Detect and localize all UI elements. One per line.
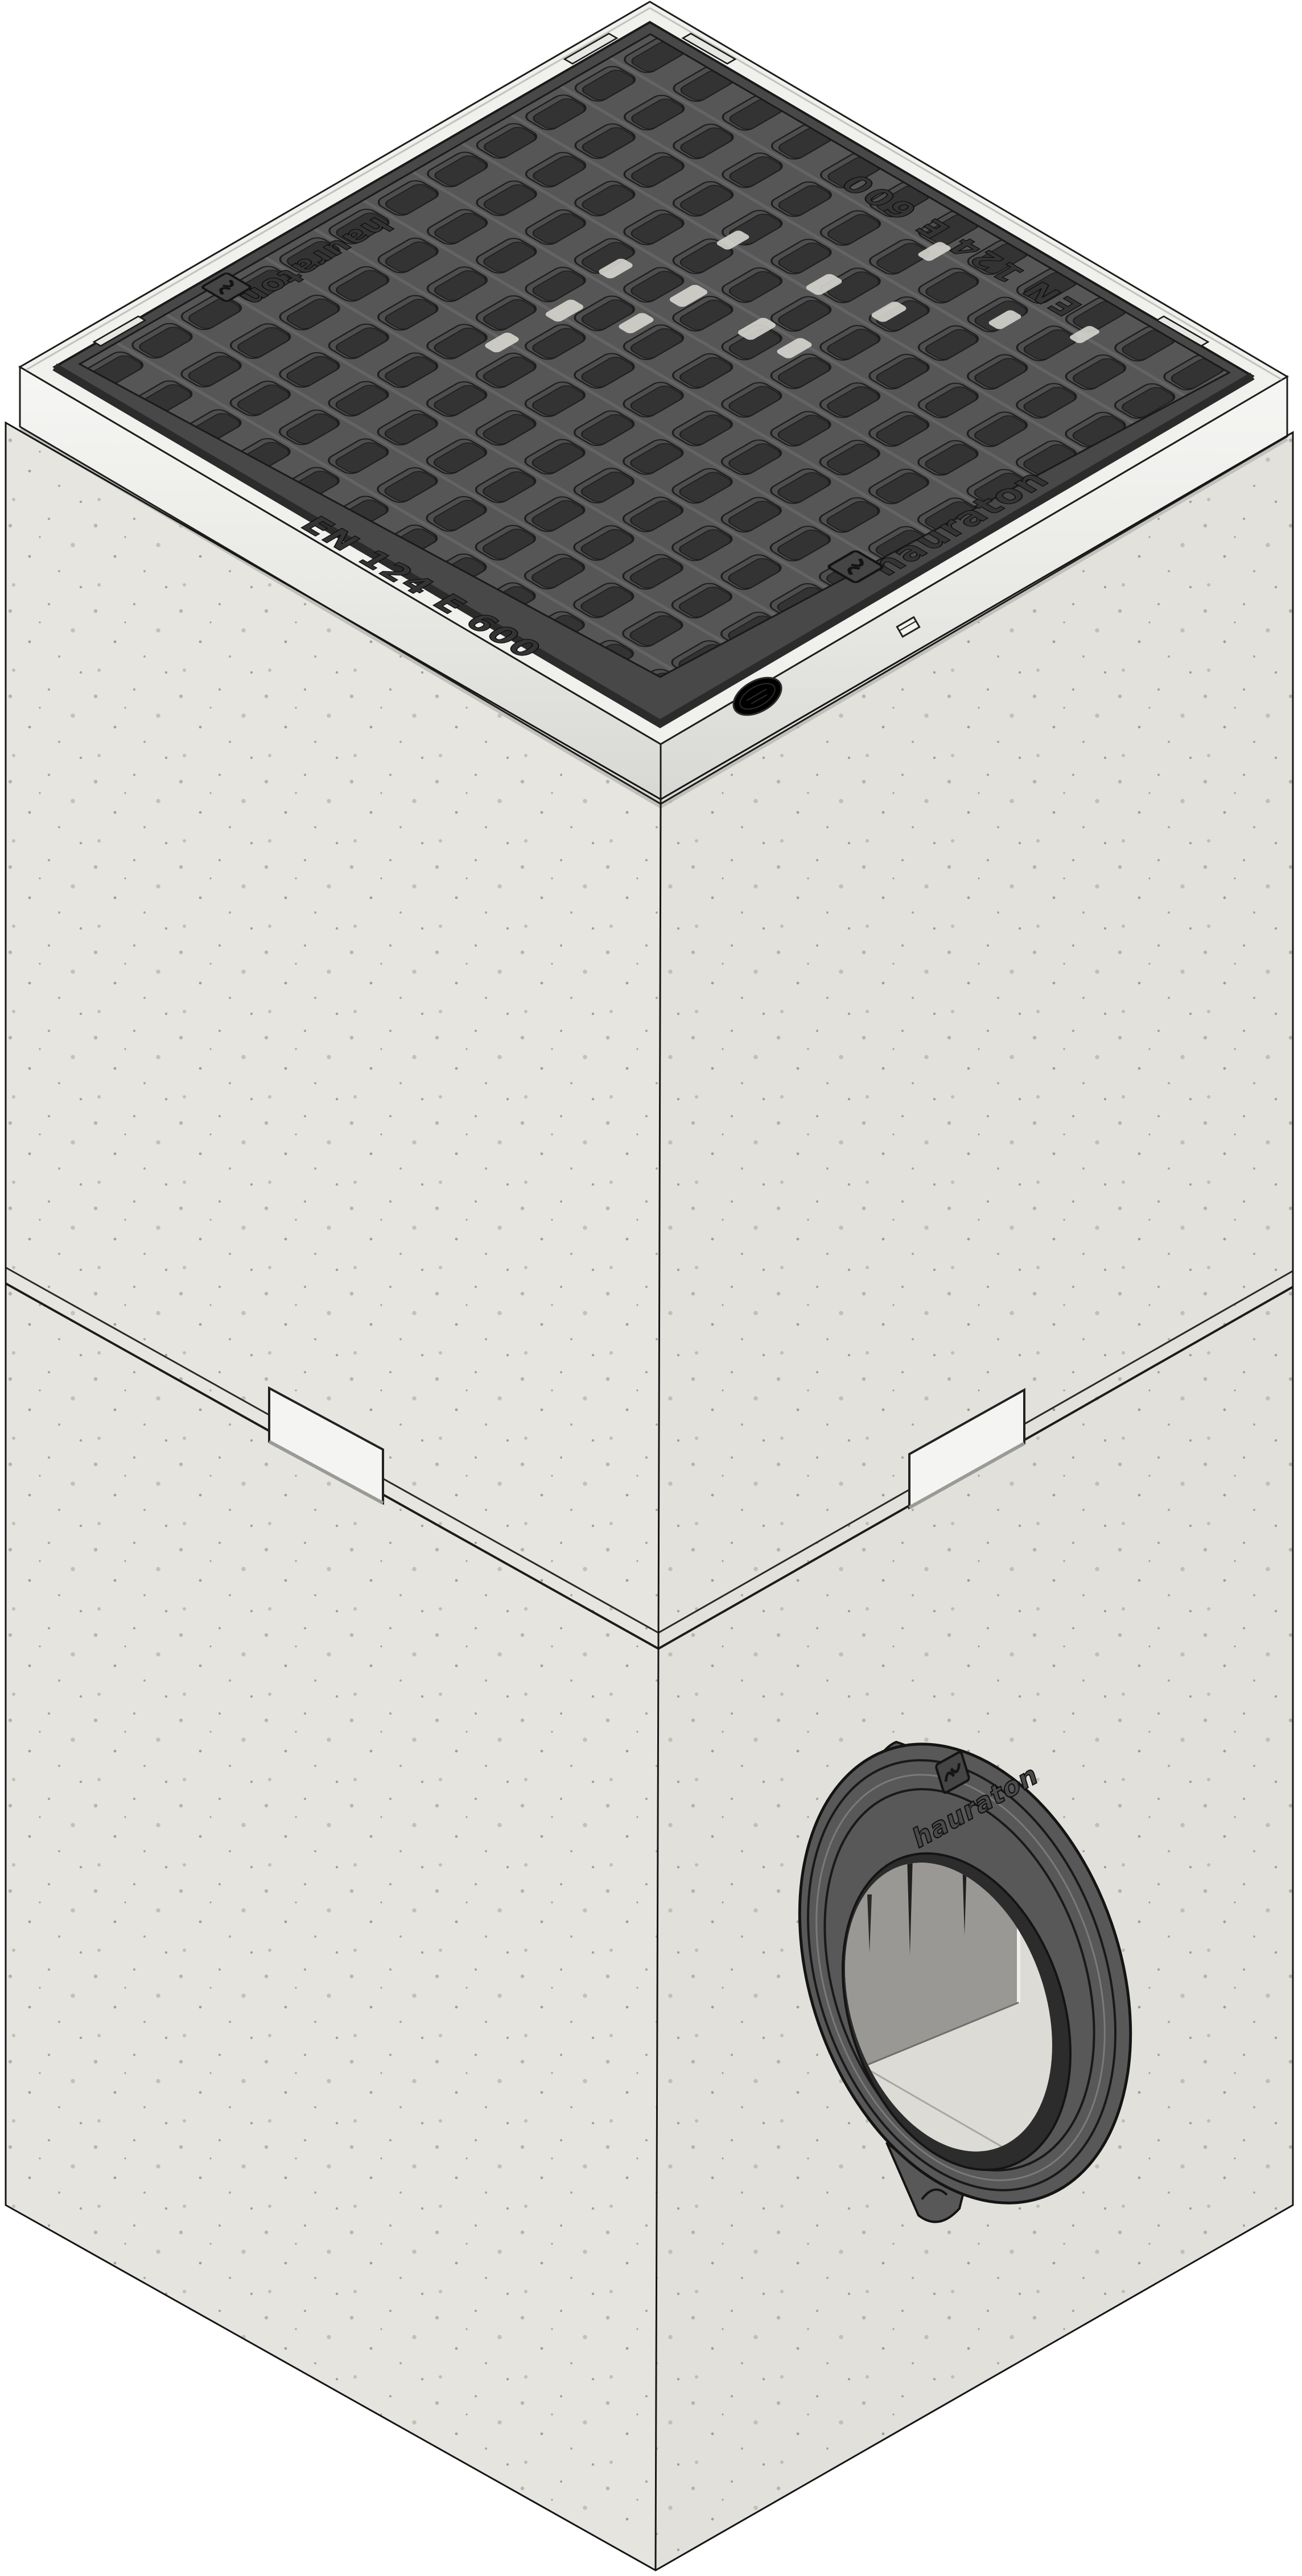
product-render-canvas: EN 124 E 600 hauraton hauraton EN 124 E …: [0, 0, 1302, 2576]
drainage-box-render: EN 124 E 600 hauraton hauraton EN 124 E …: [0, 0, 1302, 2576]
